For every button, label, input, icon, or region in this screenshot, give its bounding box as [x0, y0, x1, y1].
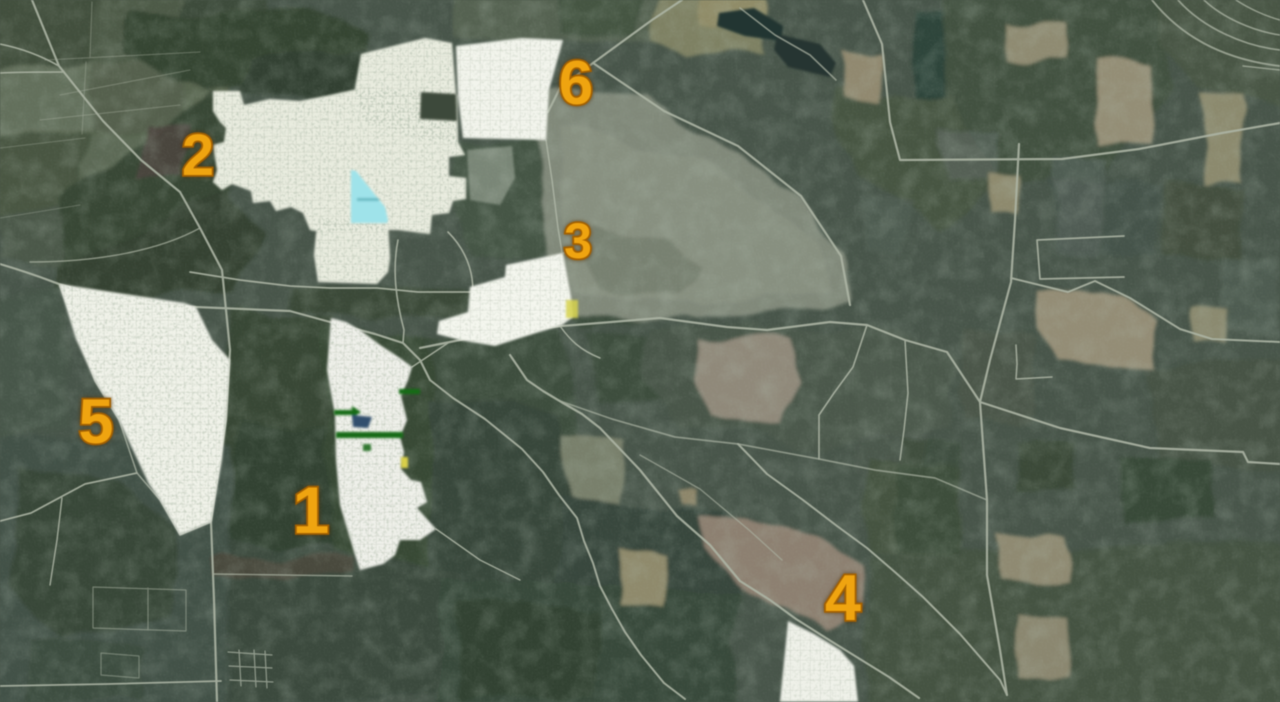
- svg-text:4: 4: [825, 561, 861, 634]
- svg-text:3: 3: [564, 213, 592, 269]
- svg-text:6: 6: [559, 49, 593, 118]
- svg-text:5: 5: [78, 387, 113, 457]
- svg-text:2: 2: [182, 123, 214, 188]
- svg-text:1: 1: [293, 473, 330, 547]
